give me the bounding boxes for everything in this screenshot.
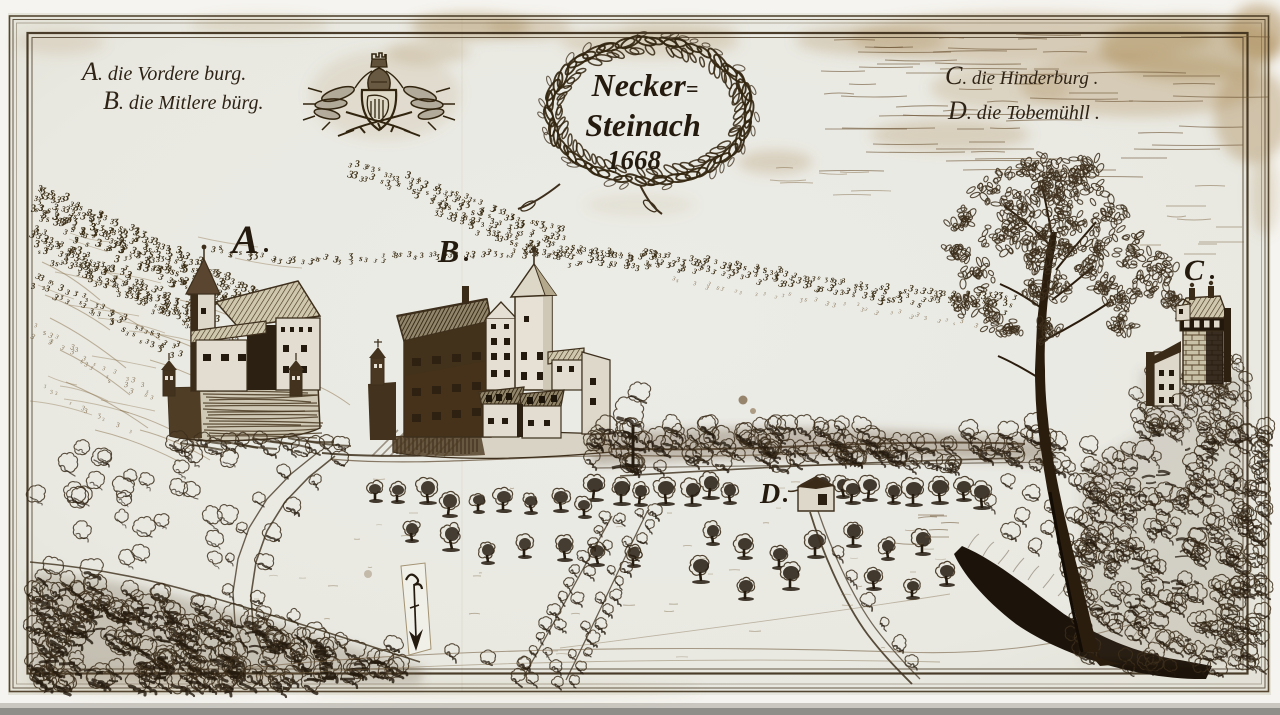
svg-text:C: C [1184,254,1205,287]
svg-text:3: 3 [123,380,129,389]
svg-text:3: 3 [439,206,444,214]
svg-text:3: 3 [806,279,813,290]
svg-text:s: s [160,340,165,350]
svg-text:3: 3 [913,287,919,296]
svg-text:Necker=: Necker= [591,67,699,103]
svg-text:ʒ: ʒ [465,198,471,209]
svg-text:3: 3 [705,264,711,274]
svg-text:3: 3 [935,295,941,305]
svg-text:3: 3 [30,281,37,291]
svg-text:3: 3 [148,293,153,301]
svg-text:3: 3 [503,232,510,243]
svg-text:3: 3 [91,234,95,240]
svg-text:3: 3 [63,252,69,262]
svg-text:3: 3 [42,246,48,257]
svg-text:1668: 1668 [607,145,662,175]
svg-text:s: s [108,243,113,253]
svg-text:3: 3 [587,248,593,259]
svg-text:3: 3 [71,223,76,232]
svg-text:3: 3 [140,381,145,389]
svg-text:3: 3 [418,251,424,260]
svg-text:B: B [437,233,459,269]
svg-text:ʒ: ʒ [291,253,297,263]
svg-text:s: s [37,248,41,256]
svg-text:3: 3 [1001,298,1008,309]
svg-text:3: 3 [634,263,640,273]
svg-text:3: 3 [86,267,91,275]
svg-text:D: D [759,479,780,510]
svg-text:3: 3 [167,264,172,273]
svg-text:3: 3 [103,277,110,288]
svg-text:Steinach: Steinach [585,107,701,143]
svg-text:3: 3 [49,390,53,396]
svg-text:s: s [43,328,46,337]
svg-text:ʒ: ʒ [113,215,120,227]
svg-text:3: 3 [83,407,88,415]
svg-text:3: 3 [905,292,910,300]
svg-text:3: 3 [119,267,125,278]
svg-text:3: 3 [941,289,946,298]
svg-text:s: s [377,165,381,173]
svg-text:ʒ: ʒ [167,310,171,316]
svg-text:3: 3 [492,205,497,213]
svg-text:3: 3 [468,220,476,232]
svg-text:3: 3 [406,249,413,259]
svg-text:s: s [851,290,856,299]
svg-text:3: 3 [896,295,903,306]
svg-text:3: 3 [923,316,927,322]
svg-text:ʒ: ʒ [493,248,499,257]
svg-text:3: 3 [73,260,78,269]
svg-text:s: s [184,283,188,291]
svg-text:3: 3 [115,286,120,294]
svg-text:3: 3 [45,210,49,216]
svg-text:A: A [229,217,259,262]
svg-text:ʒ: ʒ [864,281,869,290]
